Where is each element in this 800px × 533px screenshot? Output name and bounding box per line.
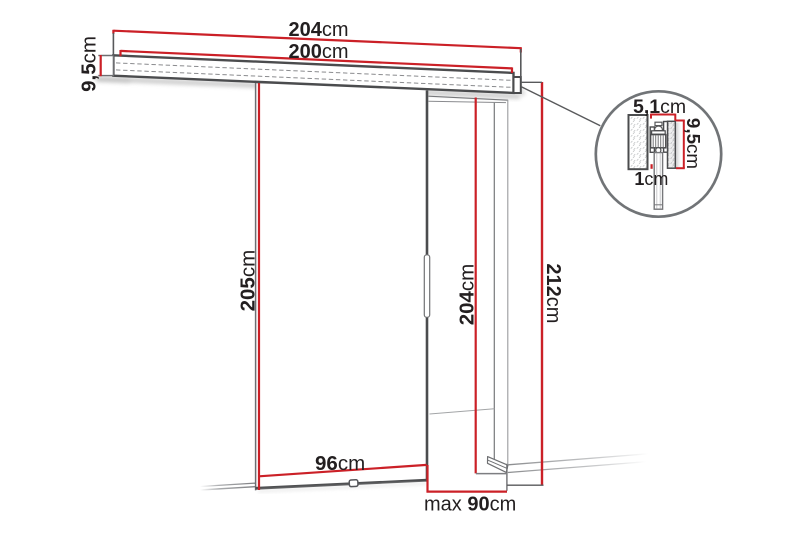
svg-text:9,5cm: 9,5cm	[78, 36, 101, 92]
svg-text:96cm: 96cm	[315, 452, 365, 475]
svg-text:max 90cm: max 90cm	[424, 494, 516, 516]
svg-text:204cm: 204cm	[289, 19, 349, 41]
svg-text:5,1cm: 5,1cm	[633, 96, 686, 118]
svg-text:212cm: 212cm	[542, 263, 564, 323]
svg-text:9,5cm: 9,5cm	[683, 118, 704, 169]
svg-text:200cm: 200cm	[289, 41, 349, 63]
svg-text:205cm: 205cm	[237, 250, 260, 312]
svg-text:1cm: 1cm	[634, 169, 668, 189]
svg-text:204cm: 204cm	[456, 264, 479, 326]
